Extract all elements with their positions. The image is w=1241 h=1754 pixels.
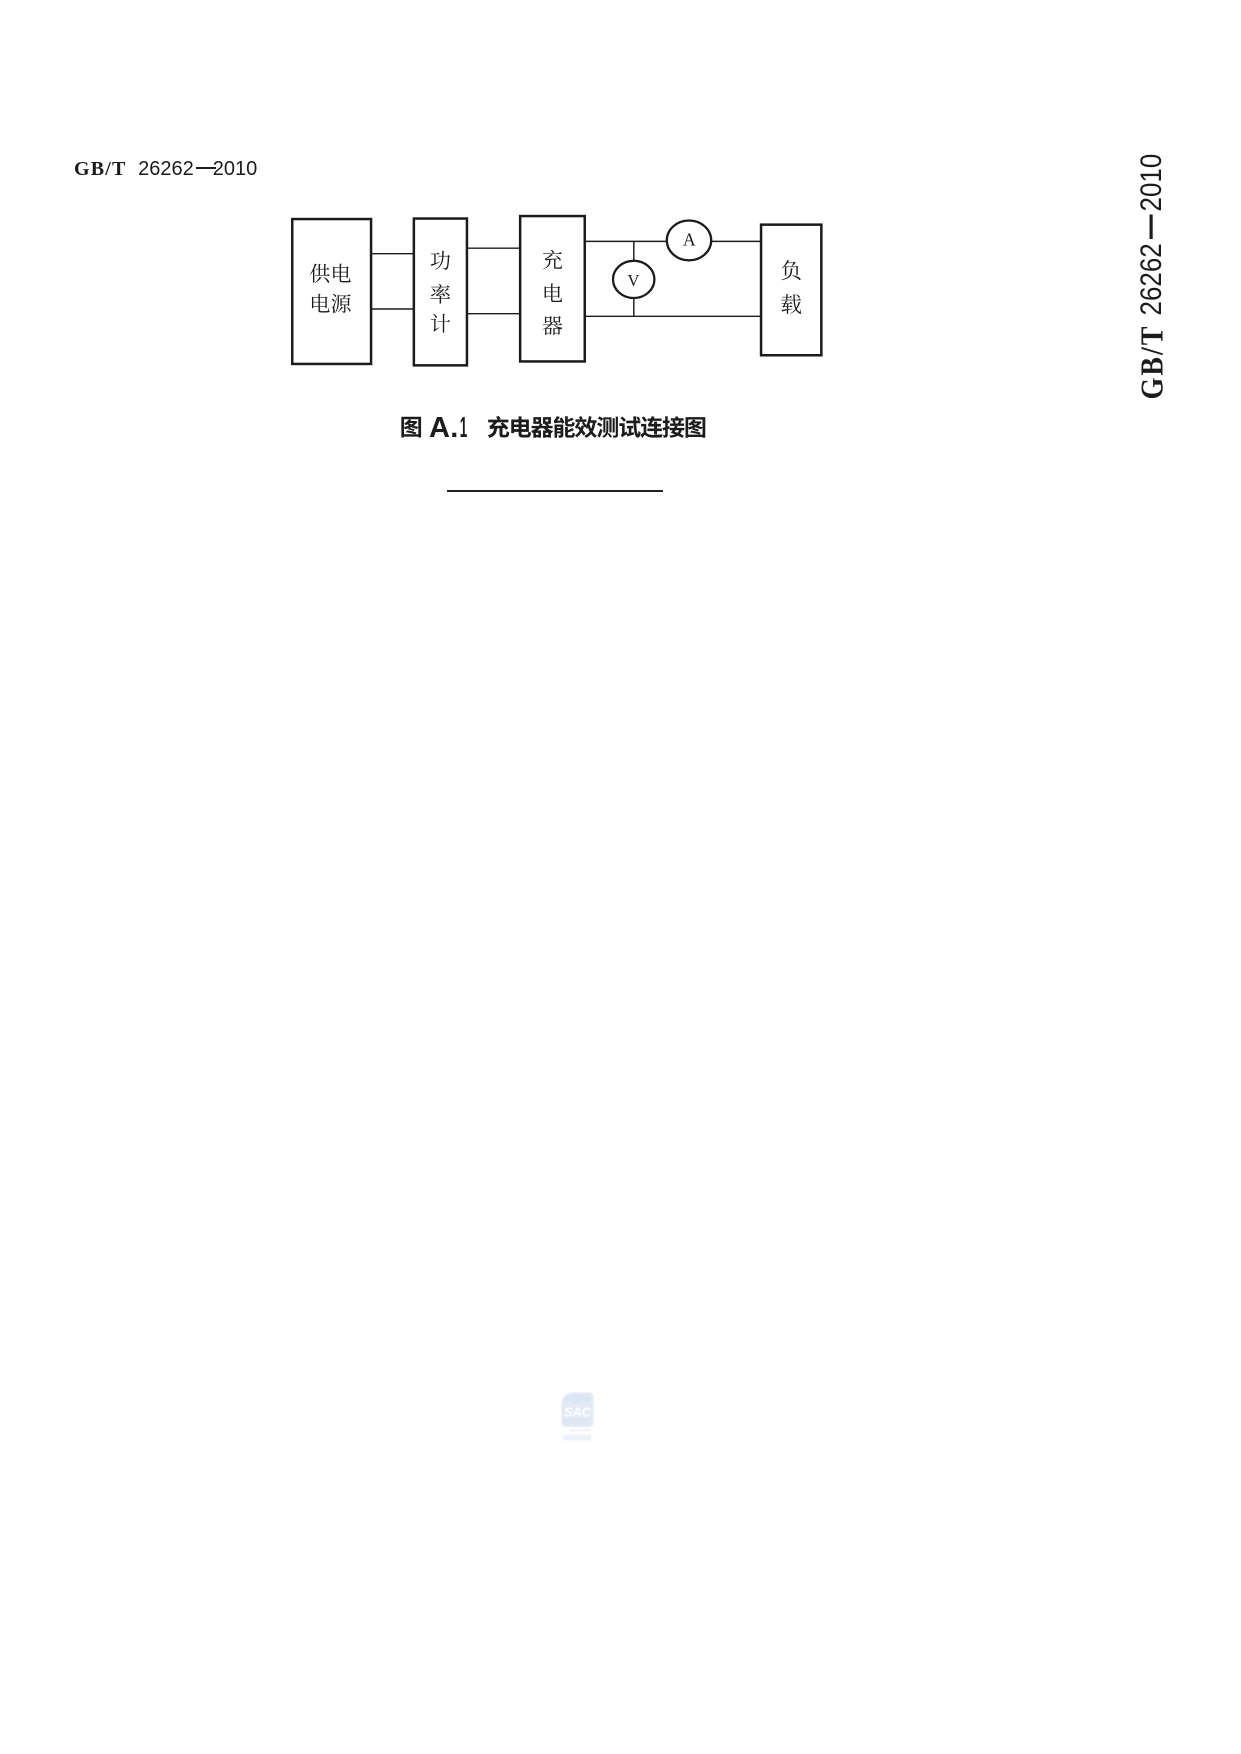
svg-text:.: . <box>450 412 458 444</box>
svg-text:1: 1 <box>460 412 468 444</box>
svg-text:SAC: SAC <box>564 1405 591 1420</box>
svg-text:A: A <box>429 412 450 444</box>
svg-text:26262: 26262 <box>1134 243 1167 315</box>
svg-text:V: V <box>628 271 640 290</box>
svg-text:A: A <box>683 230 696 250</box>
svg-text:GB/T: GB/T <box>1136 325 1170 400</box>
svg-text:2010: 2010 <box>1134 154 1167 212</box>
